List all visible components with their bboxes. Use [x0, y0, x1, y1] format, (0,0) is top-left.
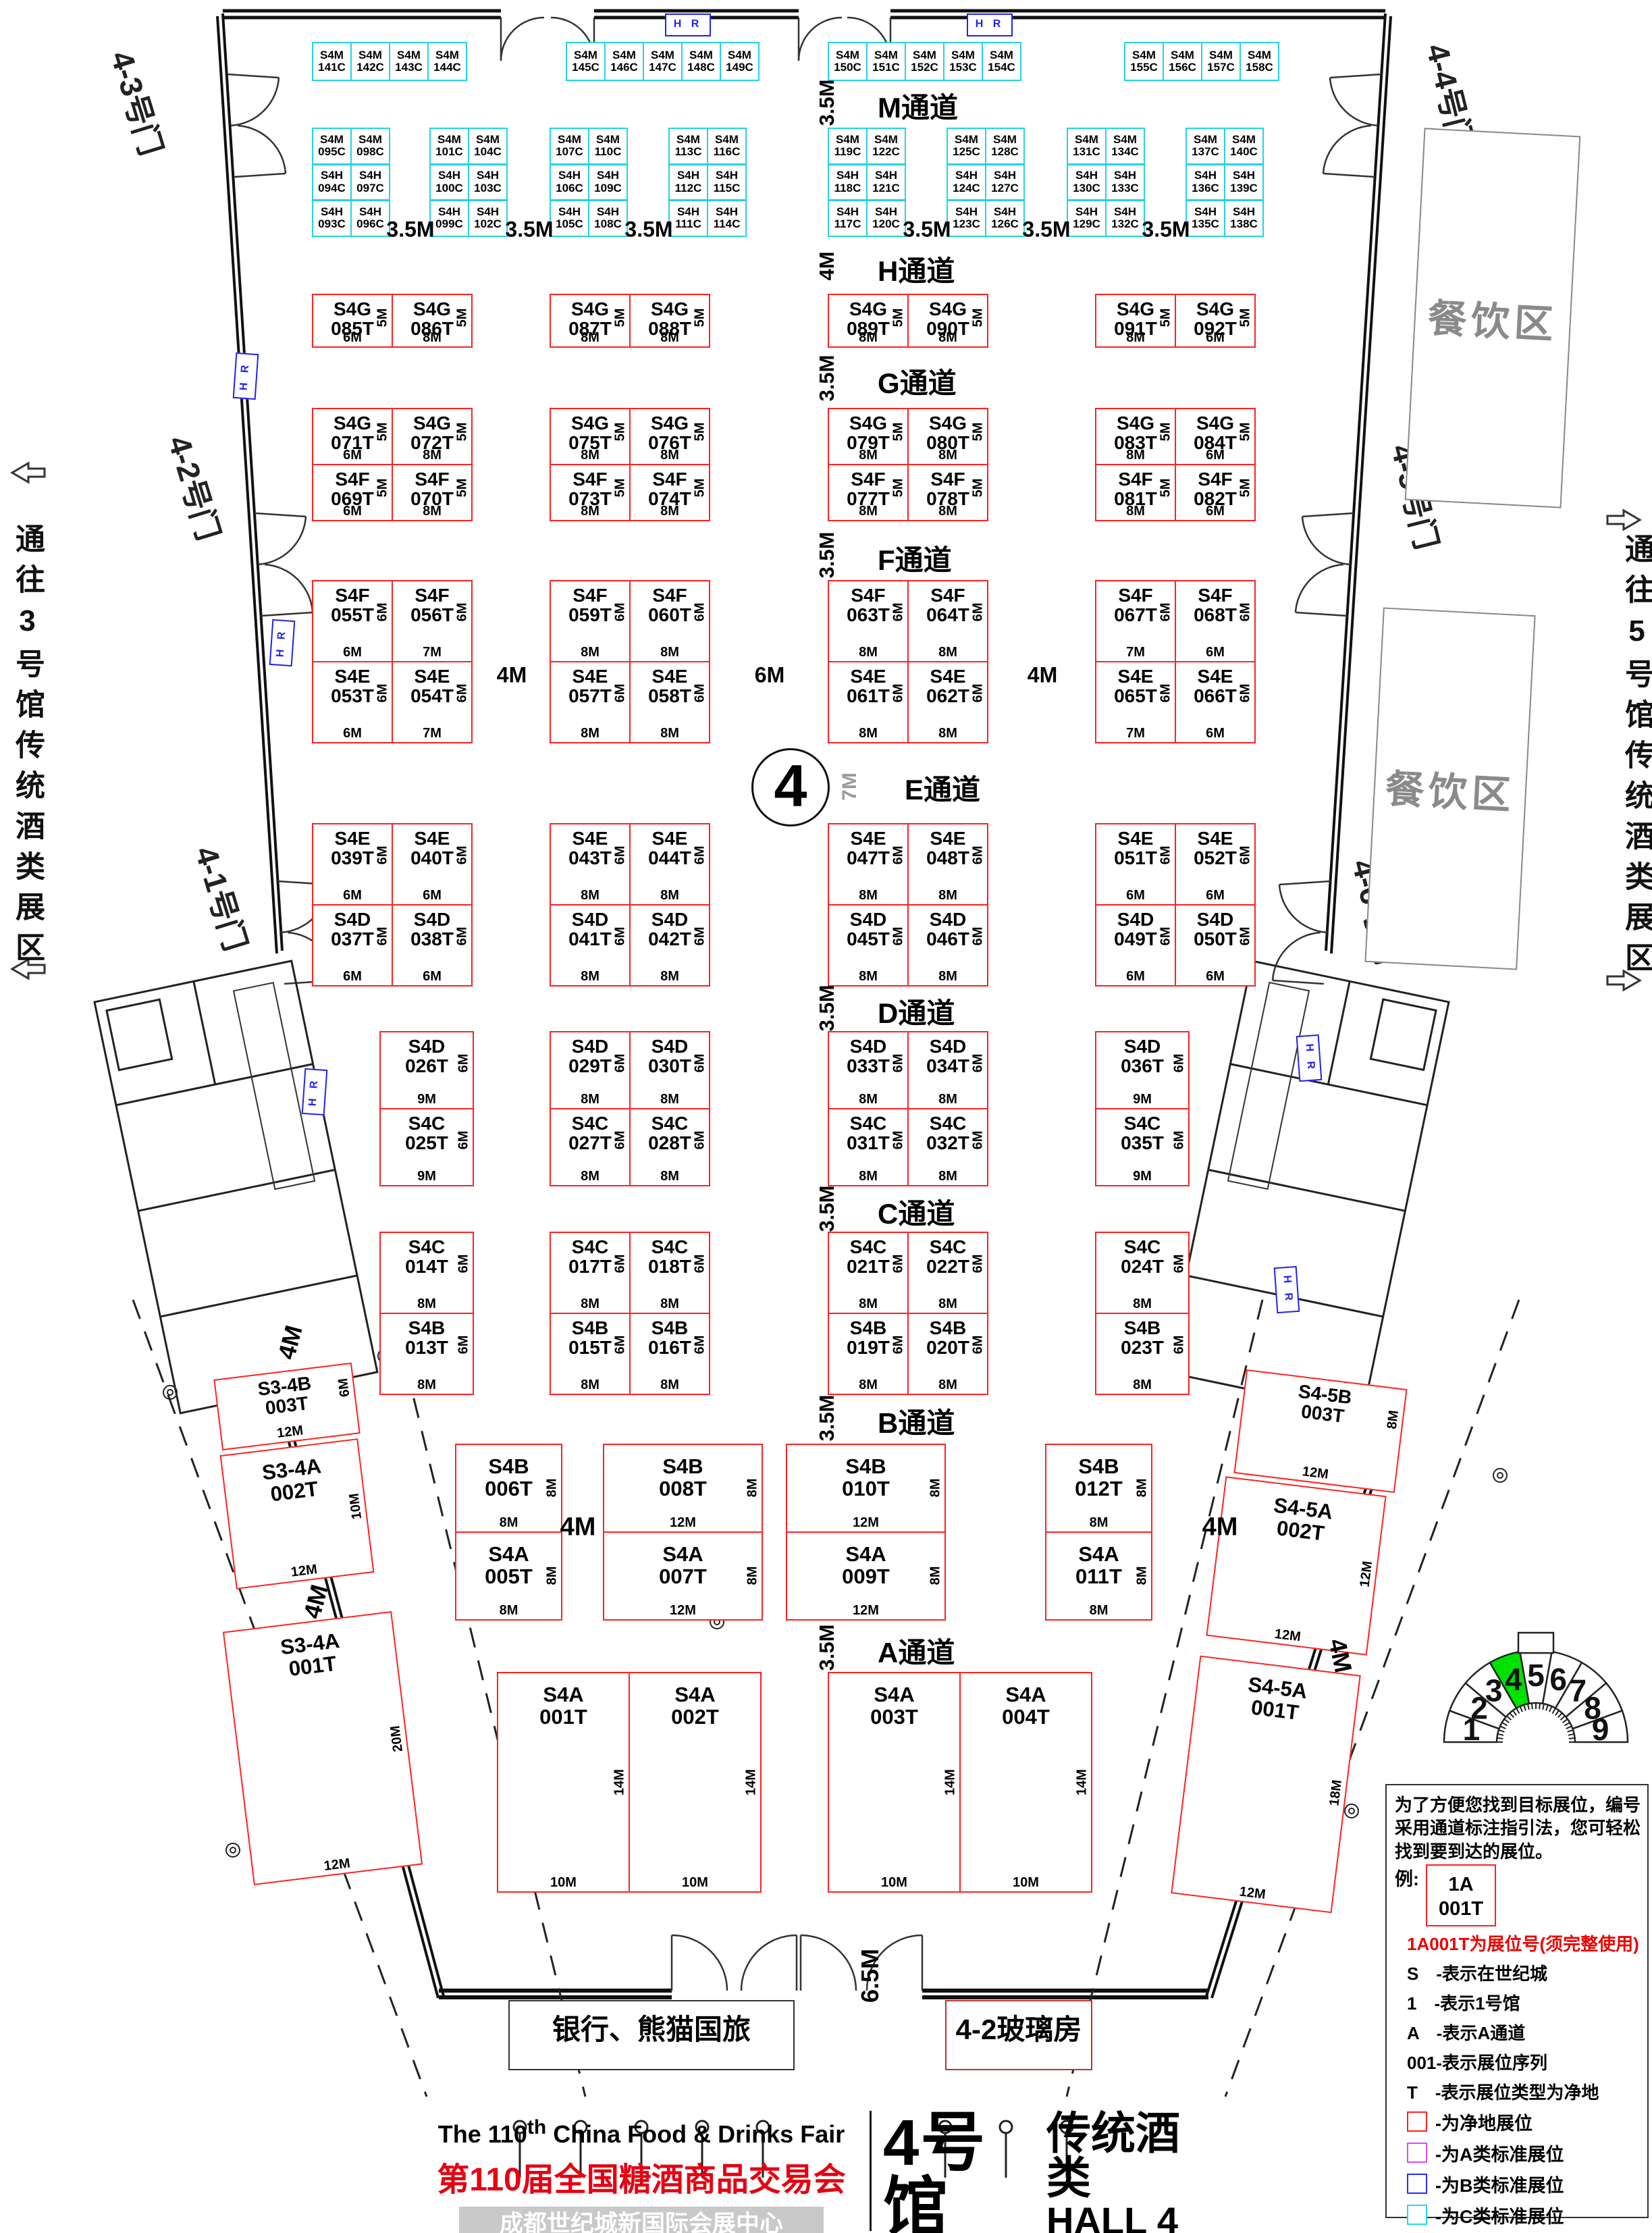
fire-hydrant-marker: H R [233, 352, 259, 400]
booth-S4M-151C: S4M151C [866, 42, 906, 81]
booth-S4M-137C: S4M137C [1185, 128, 1225, 165]
booth-S4H-132C: S4H132C [1105, 200, 1145, 237]
booth-S4H-129C: S4H129C [1067, 200, 1107, 237]
legend-swatch-label-0: -为净地展位 [1435, 2109, 1533, 2135]
legend-def-2: A -表示A通道 [1407, 2020, 1641, 2045]
booth-S4D-034T: S4D034T6M8M [907, 1031, 988, 1109]
booth-S4G-071T: S4G071T5M6M [312, 408, 393, 465]
legend-swatch-label-3: -为C类标准展位 [1435, 2202, 1564, 2228]
booth-S4M-154C: S4M154C [982, 42, 1021, 81]
booth-S4M-104C: S4M104C [468, 128, 508, 165]
aisle-label-H通道: H通道 [878, 248, 955, 290]
hall-selector-fan: 123456789 [1421, 1626, 1651, 1761]
legend-swatch-row-3: -为C类标准展位 [1407, 2202, 1641, 2228]
booth-S4H-136C: S4H136C [1185, 164, 1225, 201]
booth-S4F-060T: S4F060T6M8M [629, 580, 710, 662]
hall-name-cn: 4号馆 [883, 2111, 1038, 2233]
passage-text-right: 通往5号馆传统酒类展区 [1615, 533, 1652, 982]
fe-gap-dim-0: 4M [497, 663, 527, 688]
booth-S4E-047T: S4E047T6M8M [828, 823, 909, 905]
fire-hydrant-marker: H R [1296, 1034, 1323, 1082]
booth-S4H-100C: S4H100C [429, 164, 469, 201]
booth-S4F-068T: S4F068T6M6M [1175, 580, 1256, 662]
dining-area-top: 餐饮区 [1405, 128, 1581, 508]
booth-S4M-146C: S4M146C [604, 42, 644, 81]
booth-S4M-131C: S4M131C [1067, 128, 1107, 165]
booth-S4H-121C: S4H121C [866, 164, 906, 201]
booth-S4M-156C: S4M156C [1163, 42, 1202, 81]
booth-S4E-048T: S4E048T6M8M [907, 823, 988, 905]
title-venue: 成都世纪城新国际会展中心 [459, 2207, 824, 2233]
bank-travel-box: 银行、熊猫国旅 [508, 2000, 795, 2070]
booth-S4B-012T: S4B012T8M8M [1045, 1444, 1152, 1533]
booth-S4C-027T: S4C027T6M8M [550, 1108, 631, 1186]
title-chinese: 第110届全国糖酒商品交易会 [432, 2153, 851, 2200]
aisle-label-F通道: F通道 [878, 537, 952, 579]
booth-S4E-053T: S4E053T6M6M [312, 661, 393, 743]
booth-S4H-096C: S4H096C [350, 200, 390, 237]
booth-S4F-069T: S4F069T5M6M [312, 464, 393, 521]
passage-text-left: 通往3号馆传统酒类展区 [5, 523, 49, 972]
booth-S4C-018T: S4C018T6M8M [629, 1232, 710, 1314]
legend-intro: 为了方便您找到目标展位，编号采用通道标注指引法，您可轻松找到要到达的展位。 [1395, 1793, 1641, 1863]
booth-S4M-157C: S4M157C [1201, 42, 1241, 81]
booth-S4E-039T: S4E039T6M6M [312, 823, 393, 905]
booth-S4G-085T: S4G085T5M6M [312, 294, 393, 348]
booth-S4G-089T: S4G089T5M8M [828, 294, 909, 348]
booth-S4E-057T: S4E057T6M8M [550, 661, 631, 743]
legend-definitions: S -表示在世纪城1 -表示1号馆A -表示A通道001-表示展位序列T -表示… [1395, 1960, 1641, 2104]
booth-S4D-045T: S4D045T6M8M [828, 904, 909, 987]
booth-S4B-006T: S4B006T8M8M [455, 1444, 562, 1533]
booth-S4H-124C: S4H124C [947, 164, 986, 201]
legend-sample-line1: 1A [1427, 1872, 1495, 1897]
fan-hall-number-4: 4 [1505, 1662, 1522, 1697]
aisle-label-A通道: A通道 [878, 1630, 955, 1671]
fe-gap-dim-2: 4M [1028, 663, 1057, 688]
booth-S4H-139C: S4H139C [1224, 164, 1264, 201]
booth-S4G-090T: S4G090T5M8M [907, 294, 988, 348]
hall-name-en: HALL 4 [1046, 2200, 1194, 2233]
booth-S4E-054T: S4E054T6M7M [392, 661, 473, 743]
fire-hydrant-marker: H R [967, 14, 1013, 36]
booth-S4M-140C: S4M140C [1224, 128, 1264, 165]
booth-S4G-086T: S4G086T5M8M [392, 294, 473, 348]
booth-S4F-070T: S4F070T5M8M [392, 464, 473, 521]
booth-S4M-155C: S4M155C [1124, 42, 1164, 81]
booth-S4H-114C: S4H114C [707, 200, 747, 237]
booth-S4D-038T: S4D038T6M6M [392, 904, 473, 987]
aisle-dim-A通道: 3.5M [815, 1604, 839, 1691]
aisle-dim-D通道: 3.5M [815, 964, 839, 1052]
booth-S4G-079T: S4G079T5M8M [828, 408, 909, 465]
booth-S4E-065T: S4E065T6M7M [1095, 661, 1176, 743]
corner-gap-dim-0: 4M [272, 1322, 309, 1362]
row2-gap-dim-2: 3.5M [624, 217, 672, 242]
booth-S4B-013T: S4B013T6M8M [379, 1313, 474, 1395]
booth-S4H-133C: S4H133C [1105, 164, 1145, 201]
legend-swatch-row-0: -为净地展位 [1407, 2109, 1641, 2135]
booth-S4M-098C: S4M098C [350, 128, 390, 165]
legend-example-prefix: 例: [1395, 1864, 1419, 1891]
floor-plan-page: S4M141CS4M142CS4M143CS4M144CS4M145CS4M14… [0, 0, 1652, 2233]
booth-S4M-144C: S4M144C [427, 42, 467, 81]
booth-S4H-112C: S4H112C [668, 164, 708, 201]
booth-S4M-095C: S4M095C [312, 128, 352, 165]
ba-gap-dim-1: 4M [1202, 1513, 1238, 1542]
booth-S4D-049T: S4D049T6M6M [1095, 904, 1176, 987]
legend-swatch-row-1: -为A类标准展位 [1407, 2140, 1641, 2166]
booth-S4B-019T: S4B019T6M8M [828, 1313, 909, 1395]
legend-def-0: S -表示在世纪城 [1407, 1960, 1641, 1985]
corner-gap-dim-1: 4M [298, 1581, 334, 1621]
booth-S4A-002T: S4A002T14M10M [629, 1672, 762, 1893]
booth-S4H-108C: S4H108C [588, 200, 628, 237]
legend-note: 1A001T为展位号(须完整使用) [1407, 1930, 1641, 1955]
booth-S4G-084T: S4G084T5M6M [1175, 408, 1256, 465]
booth-S4E-061T: S4E061T6M8M [828, 661, 909, 743]
legend-swatch-color-3 [1407, 2205, 1427, 2225]
booth-S4F-073T: S4F073T5M8M [550, 464, 631, 521]
booth-S4D-030T: S4D030T6M8M [629, 1031, 710, 1109]
booth-S4D-036T: S4D036T6M9M [1095, 1031, 1190, 1109]
aisle-label-E通道: E通道 [905, 767, 980, 808]
booth-S4G-072T: S4G072T5M8M [392, 408, 473, 465]
booth-S4E-062T: S4E062T6M8M [907, 661, 988, 743]
booth-S4B-023T: S4B023T6M8M [1095, 1313, 1190, 1395]
booth-S4D-050T: S4D050T6M6M [1175, 904, 1256, 987]
booth-S4F-064T: S4F064T6M8M [907, 580, 988, 662]
booth-S4D-033T: S4D033T6M8M [828, 1031, 909, 1109]
booth-S4H-126C: S4H126C [985, 200, 1025, 237]
legend-swatch-row-2: -为B类标准展位 [1407, 2171, 1641, 2197]
booth-S4C-014T: S4C014T6M8M [379, 1232, 474, 1314]
booth-S4C-017T: S4C017T6M8M [550, 1232, 631, 1314]
row2-gap-dim-1: 3.5M [505, 217, 553, 242]
booth-S4M-147C: S4M147C [643, 42, 683, 81]
booth-S4A-009T: S4A009T8M12M [786, 1531, 946, 1621]
fe-gap-dim-1: 6M [755, 663, 784, 688]
booth-S4B-016T: S4B016T6M8M [629, 1313, 710, 1395]
booth-S4B-008T: S4B008T8M12M [603, 1444, 763, 1533]
booth-S4A-011T: S4A011T8M8M [1045, 1531, 1152, 1621]
booth-S4E-066T: S4E066T6M6M [1175, 661, 1256, 743]
legend-def-3: 001-表示展位序列 [1407, 2049, 1641, 2074]
booth-S4H-111C: S4H111C [668, 200, 708, 237]
booth-S4C-035T: S4C035T6M9M [1095, 1108, 1190, 1186]
aisle-label-D通道: D通道 [878, 991, 955, 1032]
booth-S4E-044T: S4E044T6M8M [629, 823, 710, 905]
booth-S3-4B-003T: S3-4B003T6M12M [213, 1363, 360, 1450]
bottom-aisle-dim: 6.5M [856, 1932, 884, 2020]
aisle-label-B通道: B通道 [878, 1400, 955, 1442]
booth-S4H-105C: S4H105C [550, 200, 589, 237]
booth-S4F-063T: S4F063T6M8M [828, 580, 909, 662]
fire-hydrant-marker: H R [665, 14, 711, 36]
booth-S4M-134C: S4M134C [1105, 128, 1145, 165]
booth-S4M-142C: S4M142C [350, 42, 390, 81]
booth-S4M-148C: S4M148C [681, 42, 721, 81]
aisle-label-G通道: G通道 [878, 361, 957, 402]
booth-S4A-004T: S4A004T14M10M [959, 1672, 1092, 1893]
legend-box: 为了方便您找到目标展位，编号采用通道标注指引法，您可轻松找到要到达的展位。 例:… [1385, 1784, 1649, 2218]
booth-S4H-127C: S4H127C [985, 164, 1025, 201]
aisle-dim-F通道: 3.5M [815, 511, 839, 599]
aisle-label-M通道: M通道 [878, 85, 958, 126]
legend-swatches: -为净地展位-为A类标准展位-为B类标准展位-为C类标准展位-为D类标准展位 [1395, 2109, 1641, 2233]
ba-gap-dim-0: 4M [560, 1513, 596, 1542]
row2-gap-dim-5: 3.5M [1142, 217, 1190, 242]
booth-S4M-141C: S4M141C [312, 42, 352, 81]
booth-S4E-051T: S4E051T6M6M [1095, 823, 1176, 905]
booth-S4E-043T: S4E043T6M8M [550, 823, 631, 905]
booth-S4M-122C: S4M122C [866, 128, 906, 165]
row2-gap-dim-0: 3.5M [386, 217, 434, 242]
booth-S4A-001T: S4A001T14M10M [497, 1672, 630, 1893]
booth-S4M-152C: S4M152C [905, 42, 944, 81]
fan-hall-number-9: 9 [1592, 1712, 1609, 1747]
booth-S4-5A-002T: S4-5A002T12M12M [1206, 1476, 1386, 1655]
title-english: The 110th China Food & Drinks Fair [432, 2116, 851, 2149]
booth-S4C-032T: S4C032T6M8M [907, 1108, 988, 1186]
aisle-dim-H通道: 4M [815, 222, 839, 310]
booth-S4E-058T: S4E058T6M8M [629, 661, 710, 743]
booth-S4H-138C: S4H138C [1224, 200, 1264, 237]
fire-hydrant-marker: H R [269, 619, 296, 666]
booth-S4H-135C: S4H135C [1185, 200, 1225, 237]
booth-S4D-041T: S4D041T6M8M [550, 904, 631, 987]
booth-S4G-087T: S4G087T5M8M [550, 294, 631, 348]
booth-S4M-125C: S4M125C [947, 128, 986, 165]
booth-S4D-026T: S4D026T6M9M [379, 1031, 474, 1109]
booth-S4C-022T: S4C022T6M8M [907, 1232, 988, 1314]
legend-swatch-color-2 [1407, 2174, 1427, 2194]
booth-S4B-020T: S4B020T6M8M [907, 1313, 988, 1395]
booth-S4H-106C: S4H106C [550, 164, 589, 201]
legend-swatch-label-2: -为B类标准展位 [1435, 2171, 1564, 2197]
booth-S4F-078T: S4F078T5M8M [907, 464, 988, 521]
fire-hydrant-marker: H R [1274, 1266, 1300, 1313]
booth-S4M-101C: S4M101C [429, 128, 469, 165]
booth-S4A-005T: S4A005T8M8M [455, 1531, 562, 1621]
booth-S4M-143C: S4M143C [389, 42, 429, 81]
booth-S4M-158C: S4M158C [1240, 42, 1279, 81]
booth-S3-4A-002T: S3-4A002T10M12M [220, 1438, 375, 1590]
title-block: The 110th China Food & Drinks Fair 第110届… [432, 2111, 1100, 2231]
booth-S4F-082T: S4F082T5M6M [1175, 464, 1256, 521]
booth-S4F-074T: S4F074T5M8M [629, 464, 710, 521]
legend-def-1: 1 -表示1号馆 [1407, 1990, 1641, 2015]
title-divider [870, 2111, 872, 2231]
booth-S4C-021T: S4C021T6M8M [828, 1232, 909, 1314]
booth-S4F-055T: S4F055T6M6M [312, 580, 393, 662]
booth-S4D-029T: S4D029T6M8M [550, 1031, 631, 1109]
booth-S4H-130C: S4H130C [1067, 164, 1107, 201]
booth-S4H-094C: S4H094C [312, 164, 352, 201]
legend-swatch-color-1 [1407, 2143, 1427, 2163]
booth-S4G-091T: S4G091T5M8M [1095, 294, 1176, 348]
hall-number-circle: 4 [751, 748, 830, 826]
fan-hall-number-5: 5 [1527, 1658, 1545, 1693]
booth-S4H-103C: S4H103C [468, 164, 508, 201]
dining-area-bottom: 餐饮区 [1364, 607, 1535, 970]
legend-swatch-color-0 [1407, 2111, 1427, 2132]
booth-S4B-010T: S4B010T8M12M [786, 1444, 946, 1533]
fire-hydrant-marker: H R [302, 1068, 328, 1115]
booth-S4H-102C: S4H102C [468, 200, 508, 237]
booth-S4A-007T: S4A007T8M12M [603, 1531, 763, 1621]
booth-S4M-113C: S4M113C [668, 128, 708, 165]
booth-S4D-037T: S4D037T6M6M [312, 904, 393, 987]
booth-S4G-076T: S4G076T5M8M [629, 408, 710, 465]
legend-sample-line2: 001T [1427, 1897, 1495, 1921]
booth-S4H-093C: S4H093C [312, 200, 352, 237]
booth-S4C-024T: S4C024T6M8M [1095, 1232, 1190, 1314]
booth-S4F-056T: S4F056T6M7M [392, 580, 473, 662]
booth-S4M-110C: S4M110C [588, 128, 628, 165]
booth-S4M-128C: S4M128C [985, 128, 1025, 165]
legend-sample-booth: 1A 001T [1426, 1864, 1496, 1926]
booth-S4D-046T: S4D046T6M8M [907, 904, 988, 987]
booth-S4C-031T: S4C031T6M8M [828, 1108, 909, 1186]
booth-S4A-003T: S4A003T14M10M [828, 1672, 961, 1893]
booth-S4C-028T: S4C028T6M8M [629, 1108, 710, 1186]
legend-def-4: T -表示展位类型为净地 [1407, 2079, 1641, 2104]
booth-S4H-109C: S4H109C [588, 164, 628, 201]
row2-gap-dim-4: 3.5M [1022, 217, 1070, 242]
booth-S4G-083T: S4G083T5M8M [1095, 408, 1176, 465]
booth-S4-5B-003T: S4-5B003T8M12M [1233, 1369, 1407, 1493]
booth-S4E-052T: S4E052T6M6M [1175, 823, 1256, 905]
aisle-dim-C通道: 3.5M [815, 1165, 839, 1253]
booth-S4M-145C: S4M145C [566, 42, 606, 81]
booth-S4D-042T: S4D042T6M8M [629, 904, 710, 987]
booth-S4F-081T: S4F081T5M8M [1095, 464, 1176, 521]
booth-S4H-097C: S4H097C [350, 164, 390, 201]
booth-S4H-123C: S4H123C [947, 200, 986, 237]
glass-room-box: 4-2玻璃房 [945, 2000, 1092, 2070]
booth-S4E-040T: S4E040T6M6M [392, 823, 473, 905]
booth-S4G-088T: S4G088T5M8M [629, 294, 710, 348]
booth-S3-4A-001T: S3-4A001T20M12M [223, 1611, 423, 1885]
booth-S4-5A-001T: S4-5A001T18M12M [1171, 1656, 1360, 1914]
row2-gap-dim-3: 3.5M [903, 217, 951, 242]
booth-S4M-153C: S4M153C [943, 42, 983, 81]
aisle-dim-G通道: 3.5M [815, 334, 839, 422]
e-aisle-7m-dim: 7M [838, 772, 861, 801]
booth-S4H-120C: S4H120C [866, 200, 906, 237]
hall-type-cn: 传统酒类 [1046, 2111, 1194, 2200]
booth-S4F-059T: S4F059T6M8M [550, 580, 631, 662]
booth-S4H-099C: S4H099C [429, 200, 469, 237]
aisle-dim-M通道: 3.5M [815, 59, 839, 147]
aisle-label-C通道: C通道 [878, 1191, 955, 1232]
booth-S4M-149C: S4M149C [720, 42, 760, 81]
booth-S4G-080T: S4G080T5M8M [907, 408, 988, 465]
booth-S4M-107C: S4M107C [550, 128, 589, 165]
booth-S4H-118C: S4H118C [828, 164, 868, 201]
booth-S4F-077T: S4F077T5M8M [828, 464, 909, 521]
booth-S4H-115C: S4H115C [707, 164, 747, 201]
booth-S4G-075T: S4G075T5M8M [550, 408, 631, 465]
booth-S4B-015T: S4B015T6M8M [550, 1313, 631, 1395]
booth-S4G-092T: S4G092T5M6M [1175, 294, 1256, 348]
aisle-dim-B通道: 3.5M [815, 1374, 839, 1462]
booth-S4F-067T: S4F067T6M7M [1095, 580, 1176, 662]
booth-S4M-116C: S4M116C [707, 128, 747, 165]
booth-S4C-025T: S4C025T6M9M [379, 1108, 474, 1186]
legend-swatch-label-1: -为A类标准展位 [1435, 2140, 1564, 2166]
